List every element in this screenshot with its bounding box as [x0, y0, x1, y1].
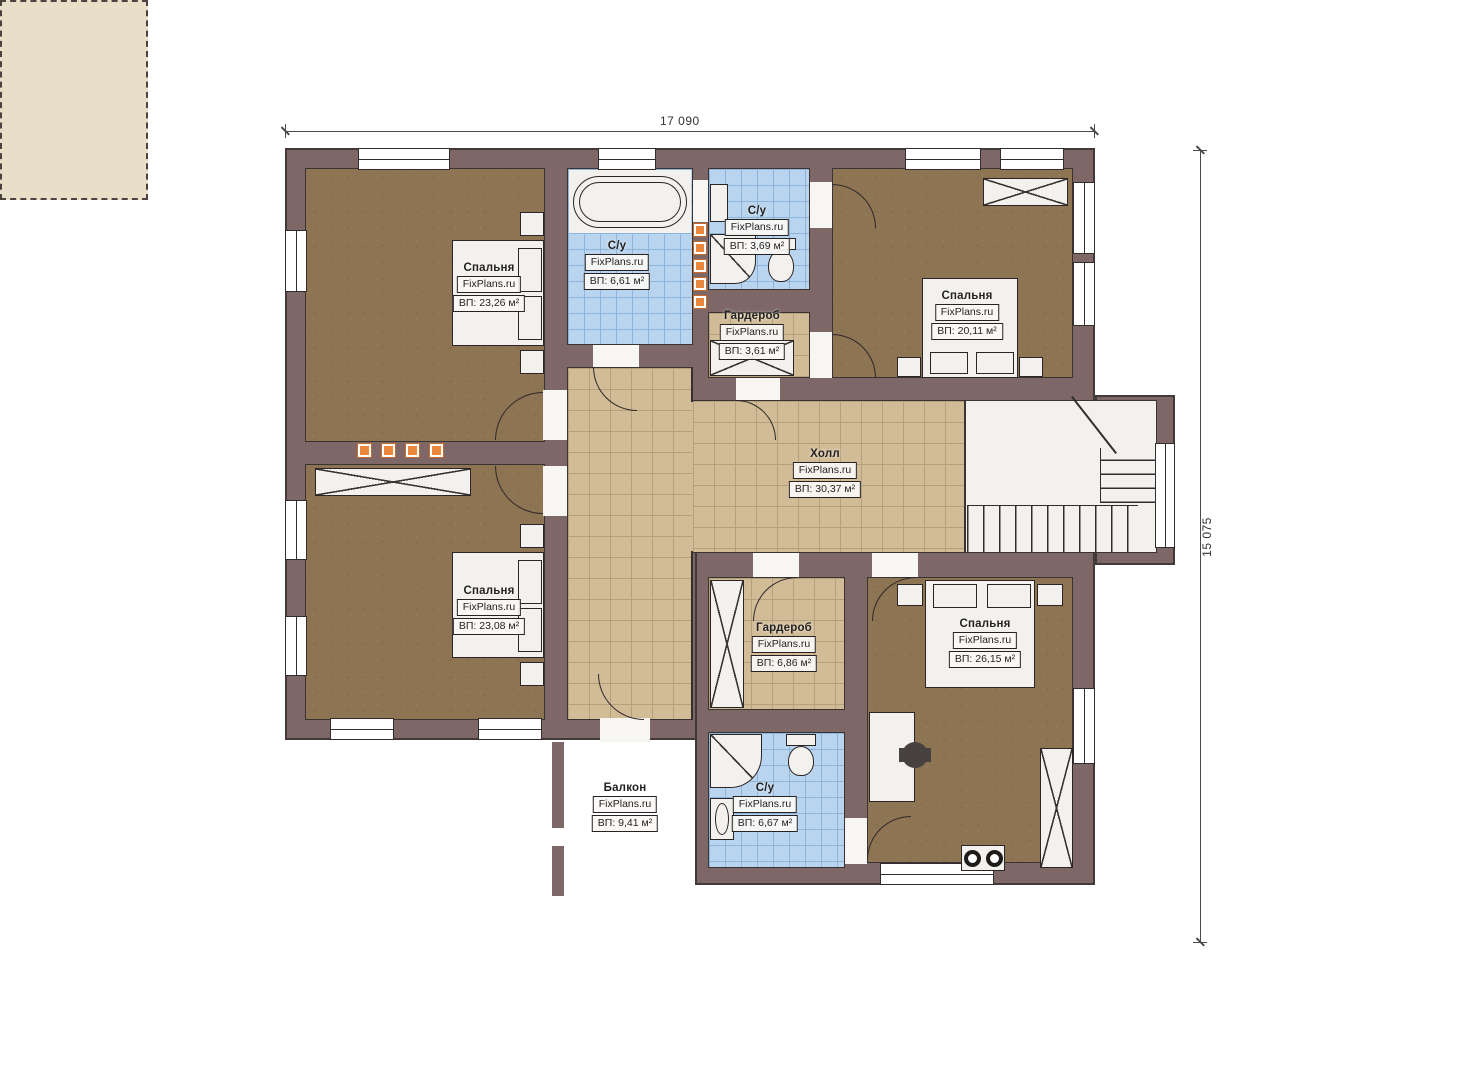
vent-block: [406, 444, 419, 457]
nightstand: [1019, 357, 1043, 377]
pillow: [933, 584, 977, 608]
watermark: FixPlans.ru: [953, 632, 1018, 649]
room-name: С/у: [724, 205, 790, 217]
room-name: Спальня: [453, 585, 525, 597]
pillow: [976, 352, 1014, 374]
room-label-bathroom-top: С/у FixPlans.ru ВП: 6,61 м²: [584, 240, 650, 290]
room-name: Балкон: [592, 782, 658, 794]
nightstand: [520, 212, 544, 236]
window: [1073, 262, 1095, 326]
wall-line-corridor-upper: [691, 367, 693, 402]
floor-sockets: [961, 845, 1005, 871]
vent-block: [694, 296, 706, 308]
vent-block: [430, 444, 443, 457]
room-label-bedroom-top-right: Спальня FixPlans.ru ВП: 20,11 м²: [931, 290, 1003, 340]
vent-block: [694, 278, 706, 290]
room-corridor: [567, 367, 693, 720]
window: [478, 718, 542, 740]
window: [598, 148, 656, 170]
room-area: ВП: 6,86 м²: [751, 655, 817, 672]
window: [358, 148, 450, 170]
door-opening-balcony: [600, 718, 650, 742]
room-area: ВП: 9,41 м²: [592, 815, 658, 832]
wardrobe-symbol: [983, 178, 1068, 206]
room-area: ВП: 3,61 м²: [719, 343, 785, 360]
wardrobe-symbol: [710, 580, 744, 708]
room-name: Гардероб: [719, 310, 785, 322]
watermark: FixPlans.ru: [593, 796, 658, 813]
dimension-height-label: 15 075: [1200, 502, 1214, 572]
door-opening: [693, 180, 708, 222]
window: [1073, 182, 1095, 254]
watermark: FixPlans.ru: [725, 219, 790, 236]
door-opening: [872, 553, 918, 577]
room-area: ВП: 3,69 м²: [724, 238, 790, 255]
vent-block: [358, 444, 371, 457]
room-label-wardrobe-top: Гардероб FixPlans.ru ВП: 3,61 м²: [719, 310, 785, 360]
door-opening: [736, 378, 780, 400]
nightstand: [1037, 584, 1063, 606]
window: [285, 500, 307, 560]
vent-block: [382, 444, 395, 457]
room-name: Спальня: [931, 290, 1003, 302]
room-label-wardrobe-bottom: Гардероб FixPlans.ru ВП: 6,86 м²: [751, 622, 817, 672]
door-opening: [845, 818, 867, 864]
door-opening: [543, 390, 567, 440]
chair-arm: [926, 748, 931, 762]
window: [285, 616, 307, 676]
room-label-bathroom-bottom: С/у FixPlans.ru ВП: 6,67 м²: [732, 782, 798, 832]
pillow: [930, 352, 968, 374]
room-area: ВП: 30,37 м²: [789, 481, 861, 498]
nightstand: [520, 524, 544, 548]
room-label-balcony: Балкон FixPlans.ru ВП: 9,41 м²: [592, 782, 658, 832]
bathtub: [573, 176, 687, 228]
watermark: FixPlans.ru: [457, 599, 522, 616]
nightstand: [520, 350, 544, 374]
pillow: [987, 584, 1031, 608]
room-name: Спальня: [453, 262, 525, 274]
window: [1000, 148, 1064, 170]
door-opening: [810, 182, 832, 228]
room-area: ВП: 26,15 м²: [949, 651, 1021, 668]
wardrobe-symbol: [315, 468, 471, 496]
room-balcony: [0, 0, 148, 200]
wall-line-corridor-lower: [691, 551, 693, 720]
desk-chair: [902, 742, 928, 768]
room-label-bedroom-bottom-right: Спальня FixPlans.ru ВП: 26,15 м²: [949, 618, 1021, 668]
room-area: ВП: 23,08 м²: [453, 618, 525, 635]
watermark: FixPlans.ru: [935, 304, 1000, 321]
room-label-bedroom-bottom-left: Спальня FixPlans.ru ВП: 23,08 м²: [453, 585, 525, 635]
door-opening: [593, 345, 639, 367]
dimension-line-top: [285, 131, 1095, 132]
wall-stub-balcony-bottom: [552, 846, 564, 896]
room-label-hall: Холл FixPlans.ru ВП: 30,37 м²: [789, 448, 861, 498]
window: [1073, 688, 1095, 764]
door-opening: [753, 553, 799, 577]
door-opening: [543, 466, 567, 516]
room-name: Холл: [789, 448, 861, 460]
window: [905, 148, 981, 170]
room-name: Гардероб: [751, 622, 817, 634]
watermark: FixPlans.ru: [733, 796, 798, 813]
sink: [710, 798, 734, 840]
wardrobe-symbol: [1040, 748, 1073, 868]
window-stair-bay: [1155, 443, 1175, 548]
door-opening: [810, 332, 832, 378]
vent-block: [694, 224, 706, 236]
watermark: FixPlans.ru: [720, 324, 785, 341]
vent-block: [694, 260, 706, 272]
nightstand: [897, 357, 921, 377]
window: [285, 230, 307, 292]
room-area: ВП: 6,61 м²: [584, 273, 650, 290]
room-name: С/у: [584, 240, 650, 252]
floor-plan-canvas: Спальня FixPlans.ru ВП: 23,26 м² С/у Fix…: [0, 0, 1473, 1080]
room-area: ВП: 20,11 м²: [931, 323, 1003, 340]
vent-block: [694, 242, 706, 254]
chair-arm: [899, 748, 904, 762]
dimension-width-label: 17 090: [660, 114, 700, 128]
room-name: С/у: [732, 782, 798, 794]
room-area: ВП: 6,67 м²: [732, 815, 798, 832]
window: [330, 718, 394, 740]
room-label-bedroom-top-left: Спальня FixPlans.ru ВП: 23,26 м²: [453, 262, 525, 312]
room-label-bathroom-top-small: С/у FixPlans.ru ВП: 3,69 м²: [724, 205, 790, 255]
room-name: Спальня: [949, 618, 1021, 630]
room-area: ВП: 23,26 м²: [453, 295, 525, 312]
nightstand: [520, 662, 544, 686]
wall-stub-balcony-top: [552, 742, 564, 828]
stairs-lower-flight: [967, 505, 1138, 552]
watermark: FixPlans.ru: [457, 276, 522, 293]
nightstand: [897, 584, 923, 606]
toilet-bowl: [788, 746, 814, 776]
stairs-right-flight: [1100, 448, 1156, 503]
watermark: FixPlans.ru: [793, 462, 858, 479]
watermark: FixPlans.ru: [752, 636, 817, 653]
watermark: FixPlans.ru: [585, 254, 650, 271]
toilet-tank: [786, 734, 816, 746]
socket-icon: [964, 850, 981, 867]
socket-icon: [986, 850, 1003, 867]
